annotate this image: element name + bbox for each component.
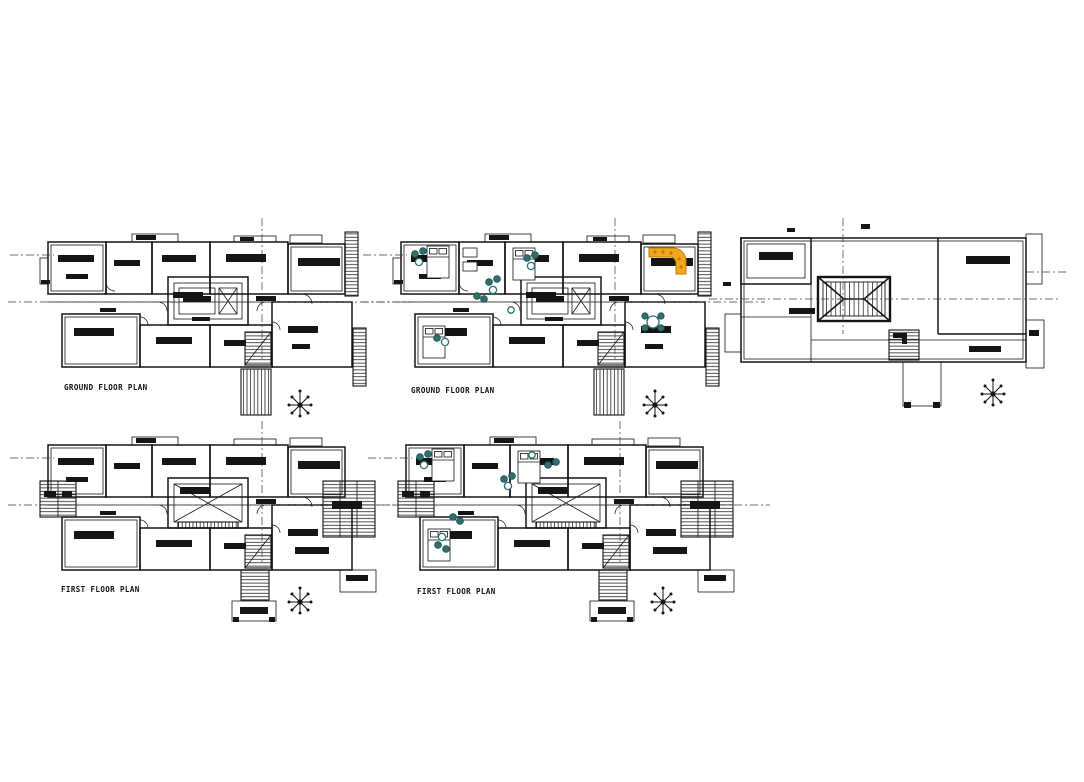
north-star-icon — [651, 587, 676, 615]
twin-bed-icon — [463, 248, 477, 257]
porch-below — [903, 362, 941, 408]
bed-icon — [427, 246, 449, 278]
north-star-icon — [288, 587, 313, 615]
north-star-icon — [981, 379, 1006, 407]
floor-plan-sheet: GROUND FLOOR PLAN GROUND FLOOR PLAN FIRS… — [0, 0, 1084, 782]
plan-title-ground-floor-unfurnished: GROUND FLOOR PLAN — [64, 383, 148, 392]
bed-icon — [432, 449, 454, 481]
twin-bed-icon — [463, 262, 477, 271]
north-star-icon — [643, 390, 668, 418]
stair-shaft — [889, 330, 919, 360]
dining-set — [642, 313, 664, 331]
plan-terrace — [709, 218, 1068, 408]
cad-drawing-canvas — [0, 0, 1084, 782]
plan-title-first-floor-unfurnished: FIRST FLOOR PLAN — [61, 585, 140, 594]
north-star-icon — [288, 390, 313, 418]
plan-title-ground-floor-furnished: GROUND FLOOR PLAN — [411, 386, 495, 395]
plan-title-first-floor-furnished: FIRST FLOOR PLAN — [417, 587, 496, 596]
